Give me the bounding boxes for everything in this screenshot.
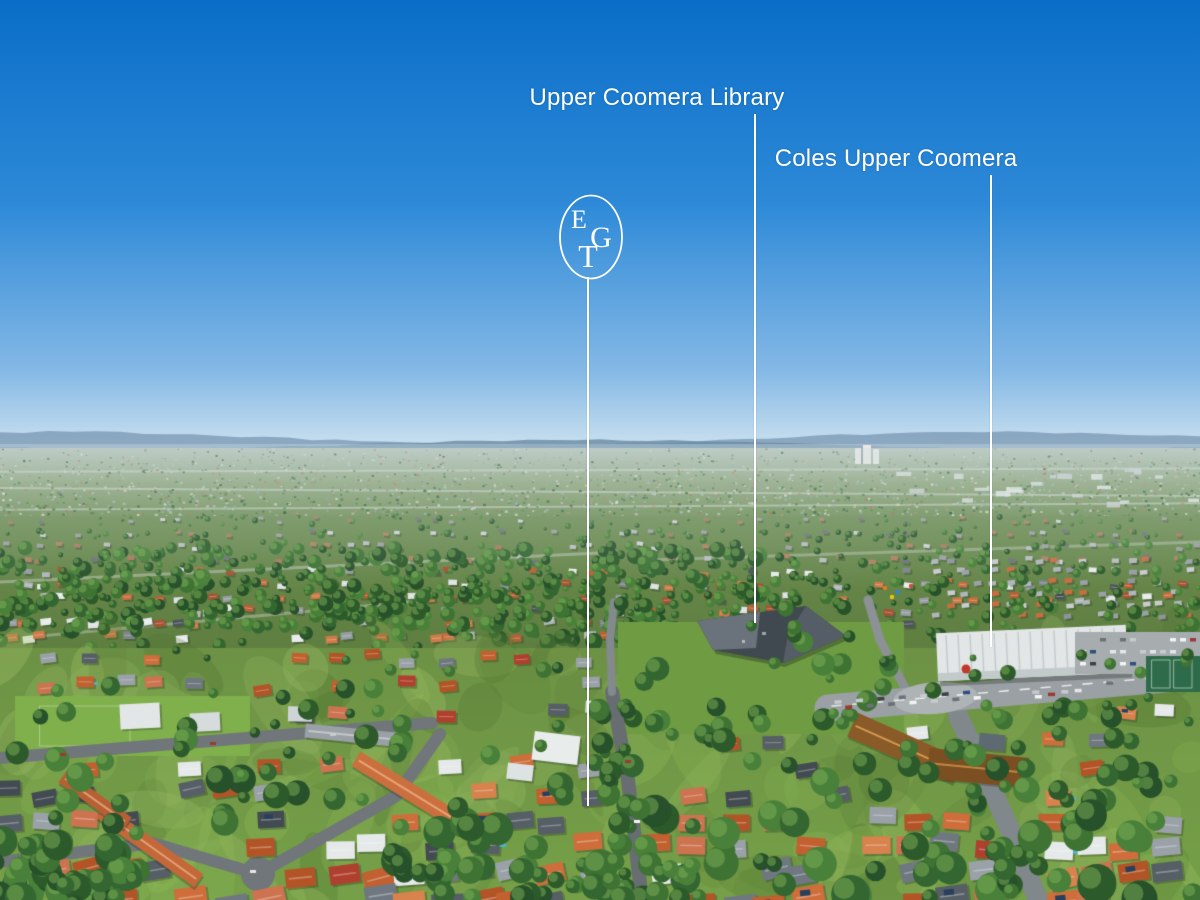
logo-letter-top: E <box>571 205 587 234</box>
brand-logo: E G T <box>530 178 650 298</box>
logo-letter-bottom: T <box>578 238 598 274</box>
callout-label-coles: Coles Upper Coomera <box>775 146 1018 172</box>
brand-logo-line <box>587 277 589 806</box>
aerial-photo-canvas <box>0 0 1200 900</box>
callout-line-library <box>754 114 756 623</box>
screenshot-root: Upper Coomera Library Coles Upper Coomer… <box>0 0 1200 900</box>
callout-line-coles <box>990 175 992 647</box>
callout-label-library: Upper Coomera Library <box>530 85 785 111</box>
